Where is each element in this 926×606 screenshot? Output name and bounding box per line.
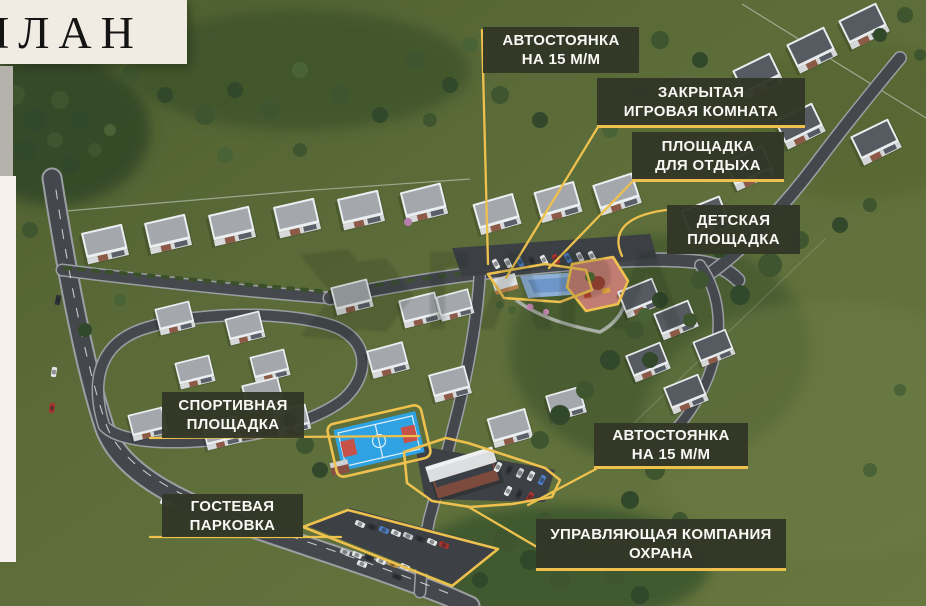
callout-guest-parking: ГОСТЕВАЯ ПАРКОВКА <box>162 494 303 537</box>
callout-line: ИГРОВАЯ КОМНАТА <box>603 102 799 121</box>
callout-line: АВТОСТОЯНКА <box>489 31 633 50</box>
callout-line: ПЛОЩАДКА <box>168 415 298 434</box>
callout-parking-right: АВТОСТОЯНКА НА 15 М/М <box>594 423 748 469</box>
callout-line: СПОРТИВНАЯ <box>168 396 298 415</box>
callout-rest-area: ПЛОЩАДКА ДЛЯ ОТДЫХА <box>632 132 784 182</box>
callout-line: НА 15 М/М <box>600 445 742 464</box>
genplan-slide: ПЛАН АВТОСТОЯНКА НА 15 М/М ЗАКРЫТАЯ ИГРО… <box>0 0 926 606</box>
plan-title: ПЛАН <box>0 6 143 59</box>
callout-line: ДЕТСКАЯ <box>673 211 794 230</box>
callout-line: ДЛЯ ОТДЫХА <box>638 156 778 175</box>
plan-title-plate: ПЛАН <box>0 0 187 64</box>
callout-line: УПРАВЛЯЮЩАЯ КОМПАНИЯ <box>542 525 780 544</box>
callout-line: ГОСТЕВАЯ <box>168 497 297 516</box>
callout-line: ПЛОЩАДКА <box>673 230 794 249</box>
callout-line: ПЛОЩАДКА <box>638 137 778 156</box>
callout-sports-ground: СПОРТИВНАЯ ПЛОЩАДКА <box>162 392 304 438</box>
callout-line: АВТОСТОЯНКА <box>600 426 742 445</box>
callout-line: ЗАКРЫТАЯ <box>603 83 799 102</box>
callout-game-room: ЗАКРЫТАЯ ИГРОВАЯ КОМНАТА <box>597 78 805 128</box>
callout-line: НА 15 М/М <box>489 50 633 69</box>
callout-line: ОХРАНА <box>542 544 780 563</box>
left-strip-pale <box>0 176 16 562</box>
callout-parking-top: АВТОСТОЯНКА НА 15 М/М <box>483 27 639 73</box>
left-strip-gray <box>0 66 13 176</box>
callout-kids-playground: ДЕТСКАЯ ПЛОЩАДКА <box>667 205 800 254</box>
callout-line: ПАРКОВКА <box>168 516 297 535</box>
callout-management: УПРАВЛЯЮЩАЯ КОМПАНИЯ ОХРАНА <box>536 519 786 571</box>
